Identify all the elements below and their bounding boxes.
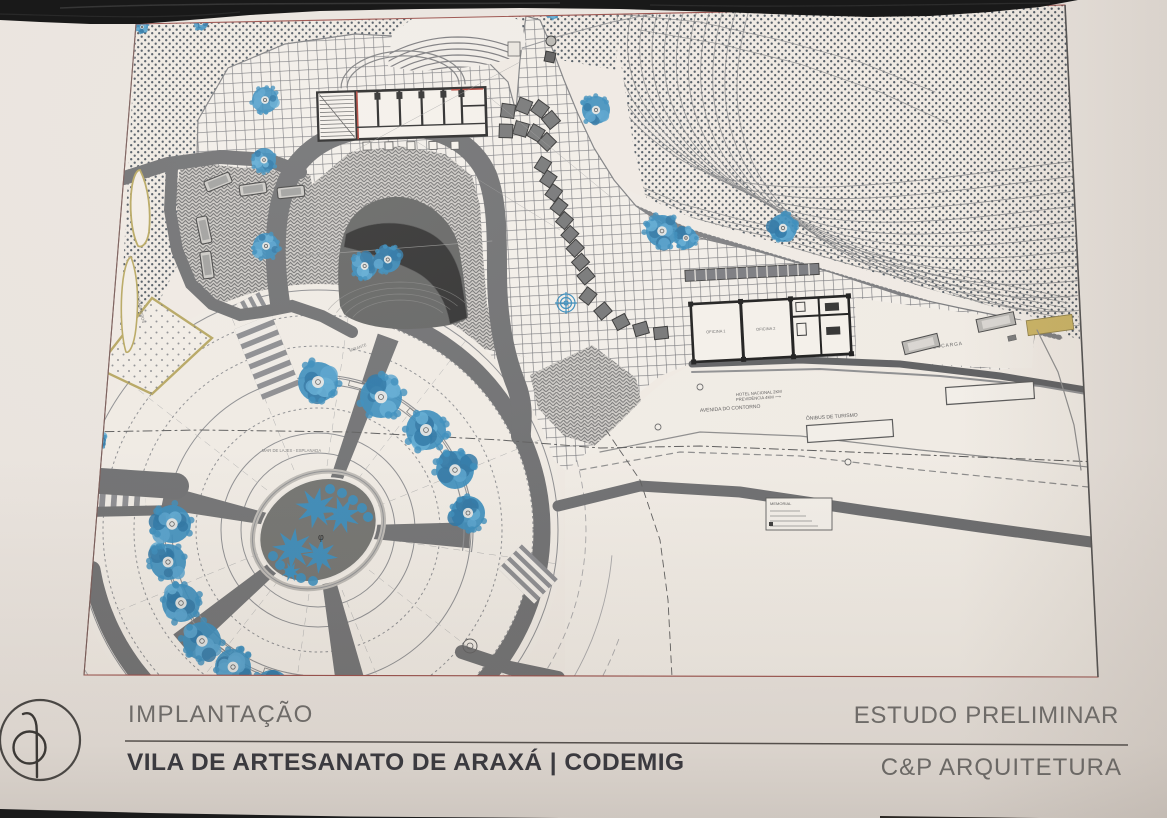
svg-text:ESTUDO PRELIMINAR: ESTUDO PRELIMINAR [854, 702, 1119, 729]
svg-text:IMPLANTAÇÃO: IMPLANTAÇÃO [128, 701, 314, 728]
svg-text:C&P ARQUITETURA: C&P ARQUITETURA [881, 754, 1122, 781]
svg-text:VILA DE ARTESANATO DE ARAXÁ |: VILA DE ARTESANATO DE ARAXÁ | CODEMIG [127, 748, 685, 776]
